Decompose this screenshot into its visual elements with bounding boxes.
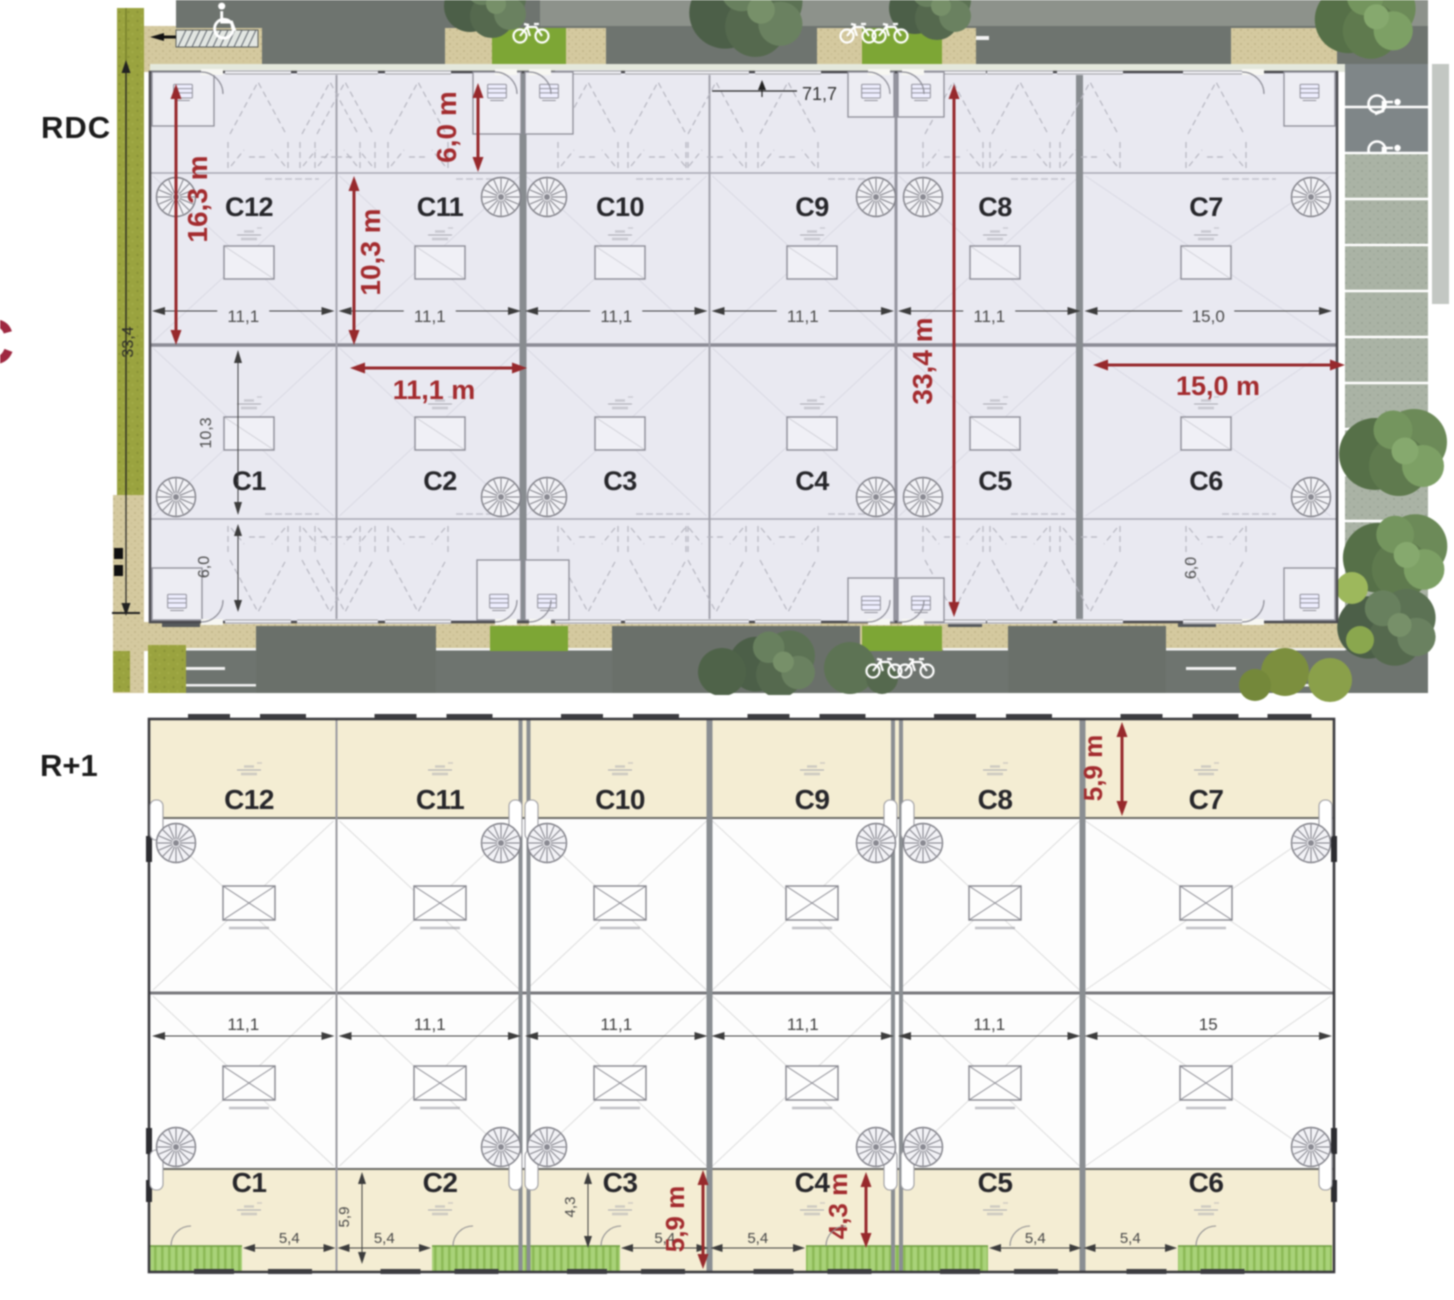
- svg-text:11,1: 11,1: [787, 307, 819, 326]
- svg-text:33,4: 33,4: [120, 326, 137, 357]
- svg-text:C2: C2: [423, 466, 457, 496]
- svg-text:C5: C5: [978, 466, 1012, 496]
- svg-text:4,3: 4,3: [562, 1197, 579, 1218]
- svg-text:11,1 m: 11,1 m: [393, 375, 476, 405]
- svg-text:11,1: 11,1: [414, 307, 446, 326]
- svg-text:10,3 m: 10,3 m: [355, 208, 386, 295]
- svg-text:C: C: [0, 306, 14, 378]
- svg-text:C1: C1: [232, 1167, 267, 1198]
- svg-text:11,1: 11,1: [973, 1015, 1005, 1034]
- svg-text:C8: C8: [978, 192, 1012, 222]
- svg-text:11,1: 11,1: [600, 1015, 632, 1034]
- svg-text:71,7: 71,7: [802, 84, 837, 104]
- svg-text:16,3 m: 16,3 m: [182, 155, 213, 242]
- svg-text:5,9 m: 5,9 m: [660, 1186, 690, 1253]
- svg-text:RDC: RDC: [41, 110, 111, 145]
- svg-text:C12: C12: [224, 784, 274, 815]
- svg-text:5,4: 5,4: [747, 1230, 768, 1247]
- svg-text:C8: C8: [978, 784, 1013, 815]
- svg-text:11,1: 11,1: [600, 307, 632, 326]
- svg-text:C4: C4: [795, 466, 829, 496]
- svg-text:11,1: 11,1: [227, 1015, 259, 1034]
- svg-text:C5: C5: [978, 1167, 1013, 1198]
- svg-text:C6: C6: [1189, 1167, 1224, 1198]
- svg-text:C9: C9: [795, 784, 830, 815]
- svg-text:C1: C1: [232, 466, 266, 496]
- svg-text:R+1: R+1: [40, 748, 98, 783]
- svg-text:C11: C11: [416, 784, 464, 815]
- svg-text:11,1: 11,1: [227, 307, 259, 326]
- svg-text:C9: C9: [795, 192, 829, 222]
- svg-text:C10: C10: [596, 192, 644, 222]
- svg-text:5,4: 5,4: [1025, 1230, 1046, 1247]
- svg-text:5,9: 5,9: [336, 1207, 353, 1228]
- svg-text:5,4: 5,4: [1120, 1230, 1141, 1247]
- svg-text:10,3: 10,3: [198, 417, 215, 448]
- svg-text:11,1: 11,1: [787, 1015, 819, 1034]
- svg-text:C6: C6: [1189, 466, 1223, 496]
- svg-text:5,4: 5,4: [279, 1230, 300, 1247]
- svg-text:4,3 m: 4,3 m: [823, 1173, 853, 1240]
- svg-text:5,4: 5,4: [374, 1230, 395, 1247]
- svg-text:6,0: 6,0: [1183, 557, 1200, 579]
- svg-text:C11: C11: [417, 192, 464, 222]
- svg-text:33,4 m: 33,4 m: [907, 317, 938, 404]
- svg-text:C3: C3: [603, 466, 637, 496]
- svg-text:C7: C7: [1189, 784, 1224, 815]
- svg-text:C10: C10: [595, 784, 645, 815]
- svg-text:15,0 m: 15,0 m: [1176, 371, 1260, 401]
- svg-text:6,0: 6,0: [196, 556, 213, 578]
- svg-text:6,0 m: 6,0 m: [431, 91, 462, 163]
- svg-text:15: 15: [1199, 1015, 1218, 1034]
- svg-text:5,9 m: 5,9 m: [1078, 735, 1108, 802]
- svg-text:C12: C12: [225, 192, 273, 222]
- svg-text:11,1: 11,1: [414, 1015, 446, 1034]
- svg-text:C2: C2: [423, 1167, 458, 1198]
- svg-text:C7: C7: [1189, 192, 1223, 222]
- svg-text:11,1: 11,1: [973, 307, 1005, 326]
- svg-text:C3: C3: [603, 1167, 638, 1198]
- svg-text:15,0: 15,0: [1192, 307, 1225, 326]
